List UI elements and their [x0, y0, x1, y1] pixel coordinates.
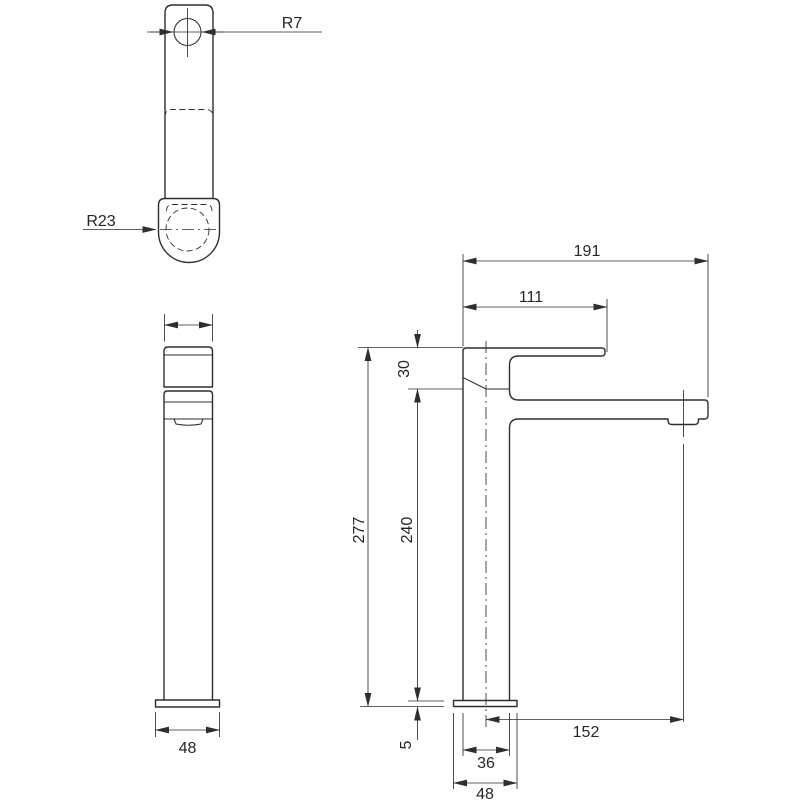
dim-240-label: 240	[399, 517, 416, 544]
dim-191-label: 191	[574, 243, 601, 260]
dim-30-label: 30	[396, 360, 413, 378]
side-base-plate	[454, 701, 518, 707]
faucet-dimension-drawing: R7 R23 48	[0, 0, 800, 800]
front-48-label: 48	[179, 740, 197, 757]
top-view-handle-outline	[165, 5, 213, 198]
dim-5-label: 5	[398, 740, 415, 749]
technical-drawing-page: R7 R23 48	[0, 0, 800, 800]
top-view-hidden-edge-upper	[165, 110, 213, 118]
dim-48-label: 48	[476, 786, 494, 800]
side-body-profile	[463, 348, 708, 700]
dim-36-label: 36	[477, 755, 495, 772]
top-view-hidden-edge-collar	[167, 205, 213, 212]
dim-152-label: 152	[573, 724, 600, 741]
side-handle-joint-slant	[463, 378, 486, 390]
dim-111-label: 111	[519, 289, 543, 306]
top-view-collar-outline	[159, 199, 220, 263]
side-view: 191 111 30 240 277 5 152 36	[351, 243, 708, 800]
front-view: 48	[156, 314, 220, 757]
front-aerator	[174, 419, 203, 425]
front-base-plate	[156, 700, 220, 707]
front-body-column	[164, 391, 213, 700]
r7-label: R7	[282, 15, 303, 32]
r23-label: R23	[86, 213, 115, 230]
top-view: R7 R23	[83, 5, 322, 263]
dim-277-label: 277	[351, 517, 368, 544]
front-handle-cap	[164, 347, 213, 387]
